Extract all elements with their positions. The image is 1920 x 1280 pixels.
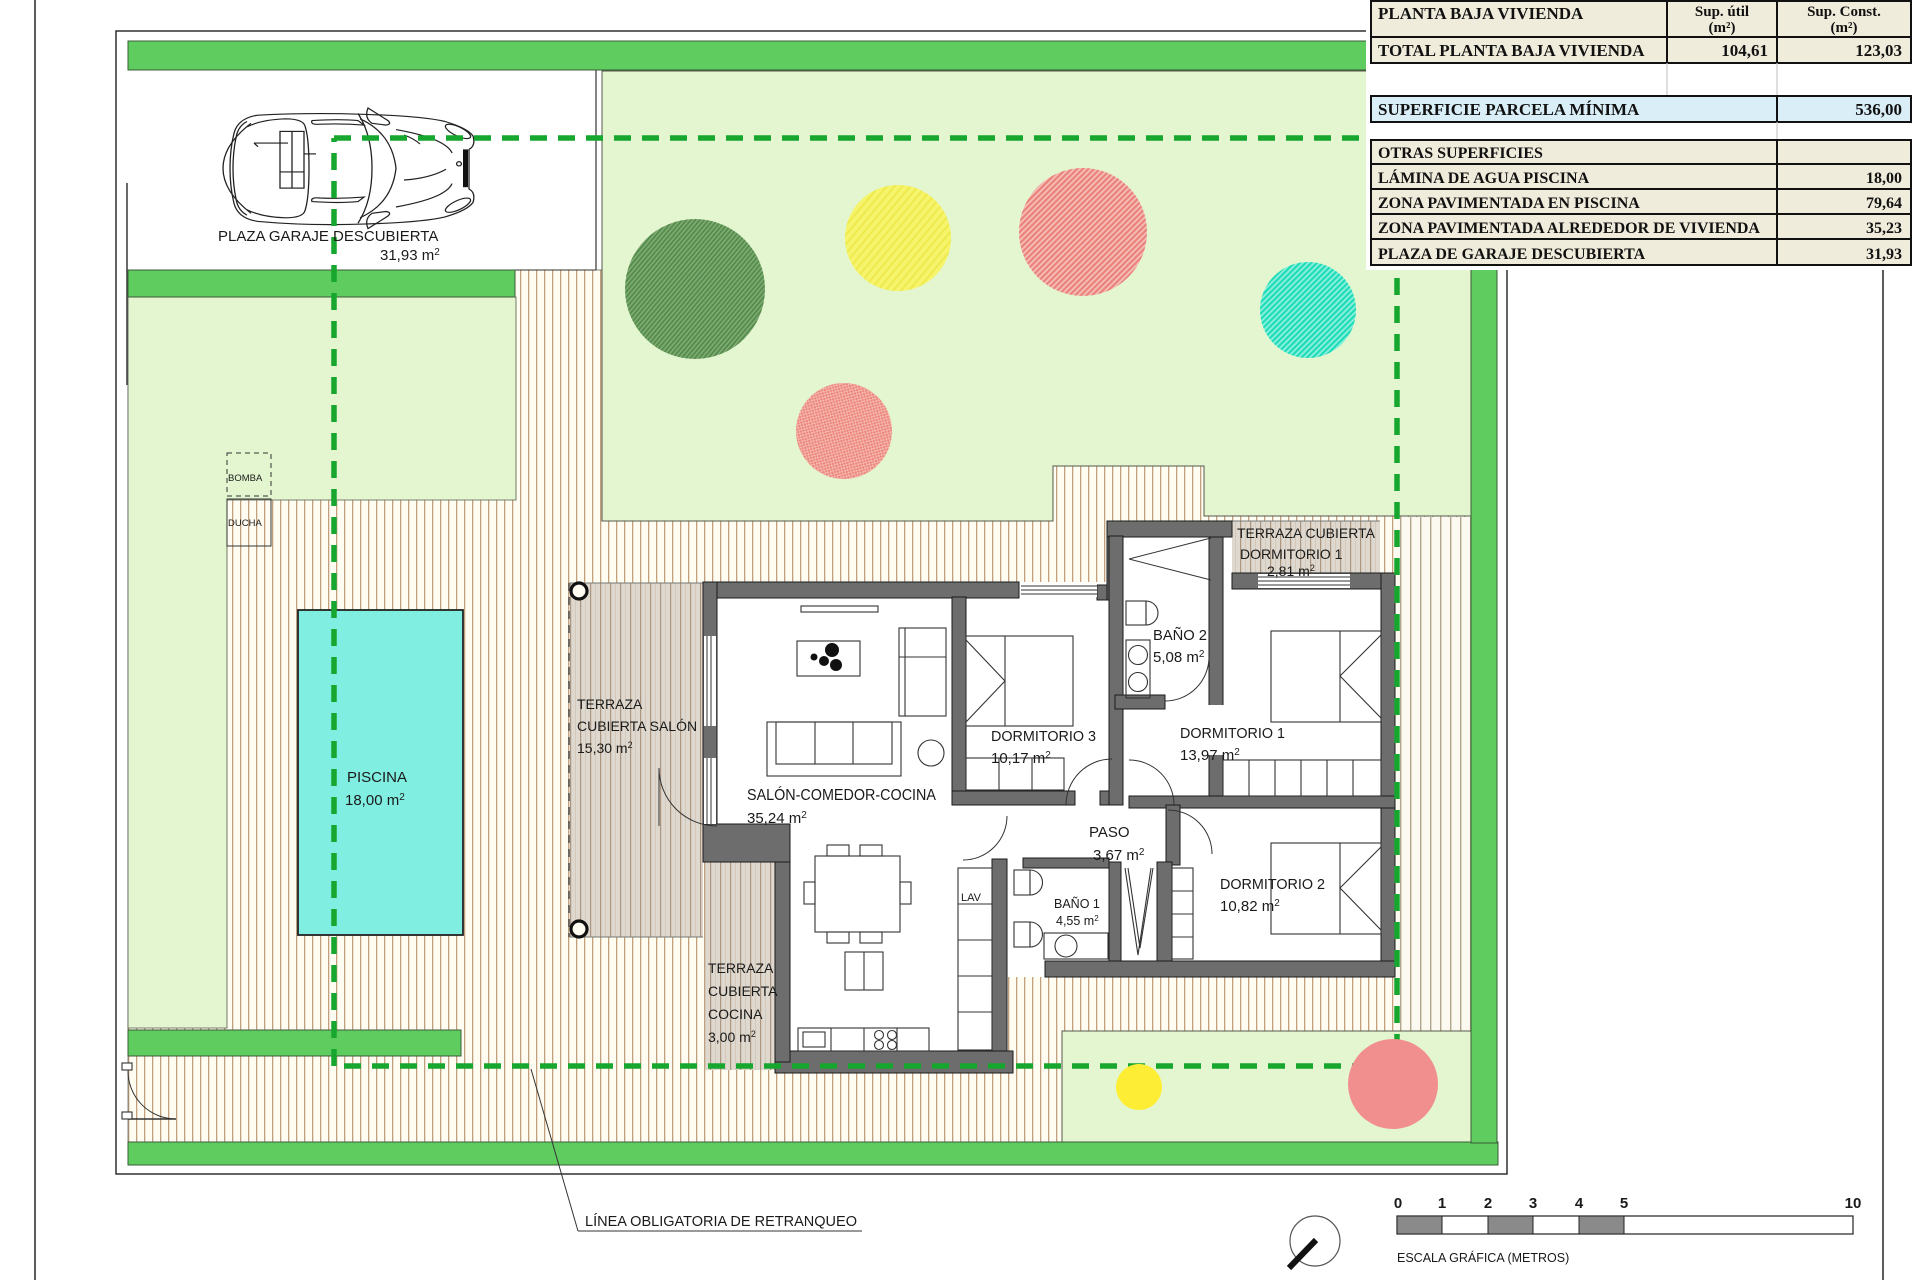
svg-text:536,00: 536,00 bbox=[1855, 100, 1902, 119]
svg-text:PLAZA GARAJE DESCUBIERTA: PLAZA GARAJE DESCUBIERTA bbox=[218, 228, 438, 245]
svg-text:ZONA PAVIMENTADA EN PISCINA: ZONA PAVIMENTADA EN PISCINA bbox=[1378, 195, 1640, 212]
svg-text:PASO: PASO bbox=[1089, 824, 1130, 841]
svg-text:SALÓN-COMEDOR-COCINA: SALÓN-COMEDOR-COCINA bbox=[747, 787, 937, 804]
svg-text:BAÑO 1: BAÑO 1 bbox=[1054, 897, 1100, 911]
svg-text:5,08 m2: 5,08 m2 bbox=[1153, 649, 1205, 666]
svg-text:DORMITORIO 1: DORMITORIO 1 bbox=[1180, 725, 1285, 742]
svg-text:BAÑO 2: BAÑO 2 bbox=[1153, 627, 1207, 644]
svg-text:18,00: 18,00 bbox=[1866, 170, 1902, 187]
svg-text:10,82 m2: 10,82 m2 bbox=[1220, 898, 1280, 915]
svg-text:BOMBA: BOMBA bbox=[228, 473, 263, 484]
svg-text:123,03: 123,03 bbox=[1855, 41, 1902, 60]
svg-text:TOTAL PLANTA BAJA VIVIENDA: TOTAL PLANTA BAJA VIVIENDA bbox=[1378, 41, 1645, 60]
svg-text:1: 1 bbox=[1438, 1195, 1446, 1212]
svg-text:DORMITORIO 1: DORMITORIO 1 bbox=[1240, 546, 1343, 562]
svg-text:4: 4 bbox=[1575, 1195, 1584, 1212]
svg-text:35,23: 35,23 bbox=[1866, 220, 1902, 237]
svg-text:3,67 m2: 3,67 m2 bbox=[1093, 847, 1145, 864]
svg-text:18,00 m2: 18,00 m2 bbox=[345, 792, 405, 809]
svg-text:31,93: 31,93 bbox=[1866, 246, 1902, 263]
svg-text:TERRAZA: TERRAZA bbox=[708, 960, 774, 976]
svg-text:10: 10 bbox=[1845, 1195, 1862, 1212]
svg-text:CUBIERTA: CUBIERTA bbox=[708, 983, 778, 999]
svg-text:104,61: 104,61 bbox=[1721, 41, 1768, 60]
svg-text:(m²): (m²) bbox=[1831, 20, 1858, 36]
svg-text:Sup. útil: Sup. útil bbox=[1695, 4, 1749, 20]
svg-text:CUBIERTA SALÓN: CUBIERTA SALÓN bbox=[577, 718, 697, 734]
svg-text:ESCALA GRÁFICA (METROS): ESCALA GRÁFICA (METROS) bbox=[1397, 1250, 1569, 1265]
svg-text:2: 2 bbox=[1484, 1195, 1492, 1212]
svg-text:PLAZA DE GARAJE DESCUBIERTA: PLAZA DE GARAJE DESCUBIERTA bbox=[1378, 246, 1646, 263]
svg-text:ZONA PAVIMENTADA ALREDEDOR DE: ZONA PAVIMENTADA ALREDEDOR DE VIVIENDA bbox=[1378, 220, 1760, 237]
svg-text:4,55 m2: 4,55 m2 bbox=[1056, 914, 1099, 928]
svg-text:DORMITORIO 3: DORMITORIO 3 bbox=[991, 728, 1096, 745]
svg-text:0: 0 bbox=[1394, 1195, 1402, 1212]
svg-text:35,24 m2: 35,24 m2 bbox=[747, 810, 807, 827]
svg-text:TERRAZA CUBIERTA: TERRAZA CUBIERTA bbox=[1237, 525, 1376, 541]
svg-text:Sup. Const.: Sup. Const. bbox=[1807, 4, 1881, 20]
svg-text:PISCINA: PISCINA bbox=[347, 769, 407, 786]
svg-text:(m²): (m²) bbox=[1709, 20, 1736, 36]
svg-text:DUCHA: DUCHA bbox=[228, 518, 262, 529]
svg-text:3,00 m2: 3,00 m2 bbox=[708, 1029, 756, 1045]
svg-text:2,81 m2: 2,81 m2 bbox=[1267, 563, 1315, 579]
svg-text:PLANTA BAJA VIVIENDA: PLANTA BAJA VIVIENDA bbox=[1378, 4, 1584, 23]
svg-text:COCINA: COCINA bbox=[708, 1006, 763, 1022]
svg-text:OTRAS SUPERFICIES: OTRAS SUPERFICIES bbox=[1378, 145, 1543, 162]
svg-text:LÁMINA DE AGUA PISCINA: LÁMINA DE AGUA PISCINA bbox=[1378, 168, 1590, 187]
svg-text:15,30 m2: 15,30 m2 bbox=[577, 740, 633, 756]
svg-text:3: 3 bbox=[1529, 1195, 1537, 1212]
svg-text:DORMITORIO 2: DORMITORIO 2 bbox=[1220, 876, 1325, 893]
svg-text:10,17 m2: 10,17 m2 bbox=[991, 750, 1051, 767]
svg-text:79,64: 79,64 bbox=[1866, 195, 1902, 212]
svg-text:13,97 m2: 13,97 m2 bbox=[1180, 747, 1240, 764]
svg-text:5: 5 bbox=[1620, 1195, 1628, 1212]
svg-text:TERRAZA: TERRAZA bbox=[577, 696, 643, 712]
svg-text:SUPERFICIE PARCELA MÍNIMA: SUPERFICIE PARCELA MÍNIMA bbox=[1378, 100, 1640, 119]
svg-text:LAV: LAV bbox=[961, 892, 982, 904]
svg-text:LÍNEA OBLIGATORIA DE RETRANQUE: LÍNEA OBLIGATORIA DE RETRANQUEO bbox=[585, 1213, 857, 1230]
svg-text:31,93 m2: 31,93 m2 bbox=[380, 247, 440, 264]
